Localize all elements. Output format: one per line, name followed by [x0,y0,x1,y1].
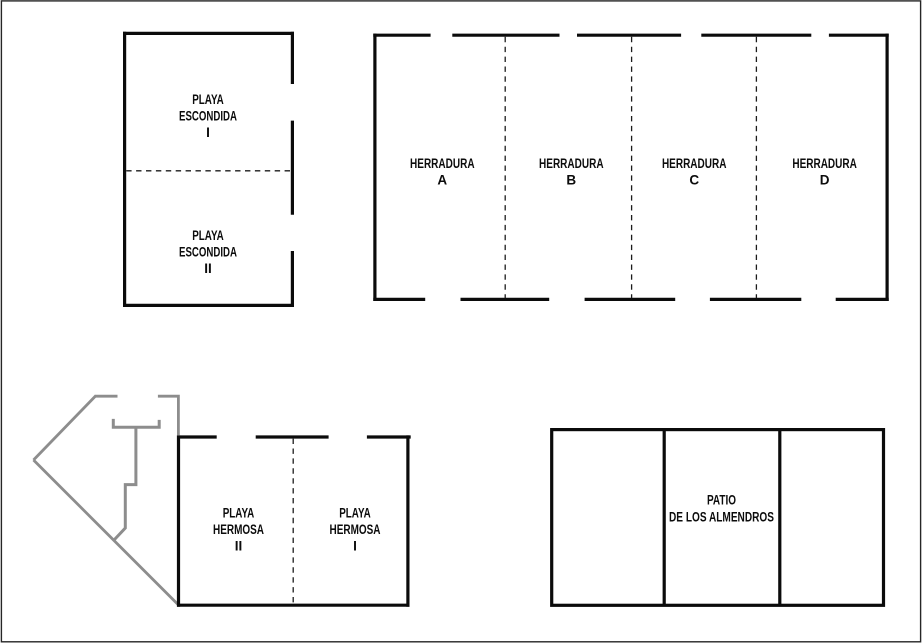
svg-text:DE LOS ALMENDROS: DE LOS ALMENDROS [669,510,774,525]
svg-text:PATIO: PATIO [707,493,736,508]
svg-text:II: II [235,539,243,554]
svg-text:PLAYA: PLAYA [223,506,255,521]
svg-text:ESCONDIDA: ESCONDIDA [179,245,237,260]
svg-text:HERRADURA: HERRADURA [792,156,857,171]
svg-text:D: D [820,172,830,187]
svg-text:A: A [437,172,447,187]
svg-text:PLAYA: PLAYA [192,228,224,243]
svg-text:HERMOSA: HERMOSA [330,522,381,537]
svg-text:B: B [566,172,576,187]
svg-text:HERMOSA: HERMOSA [213,522,264,537]
svg-text:PLAYA: PLAYA [339,506,371,521]
svg-text:ESCONDIDA: ESCONDIDA [179,108,237,123]
svg-text:PLAYA: PLAYA [192,92,224,107]
svg-text:II: II [204,261,212,276]
svg-text:HERRADURA: HERRADURA [410,156,475,171]
svg-text:I: I [353,539,357,554]
svg-text:I: I [206,125,210,140]
svg-text:C: C [689,172,699,187]
svg-text:HERRADURA: HERRADURA [539,156,604,171]
svg-text:HERRADURA: HERRADURA [662,156,727,171]
